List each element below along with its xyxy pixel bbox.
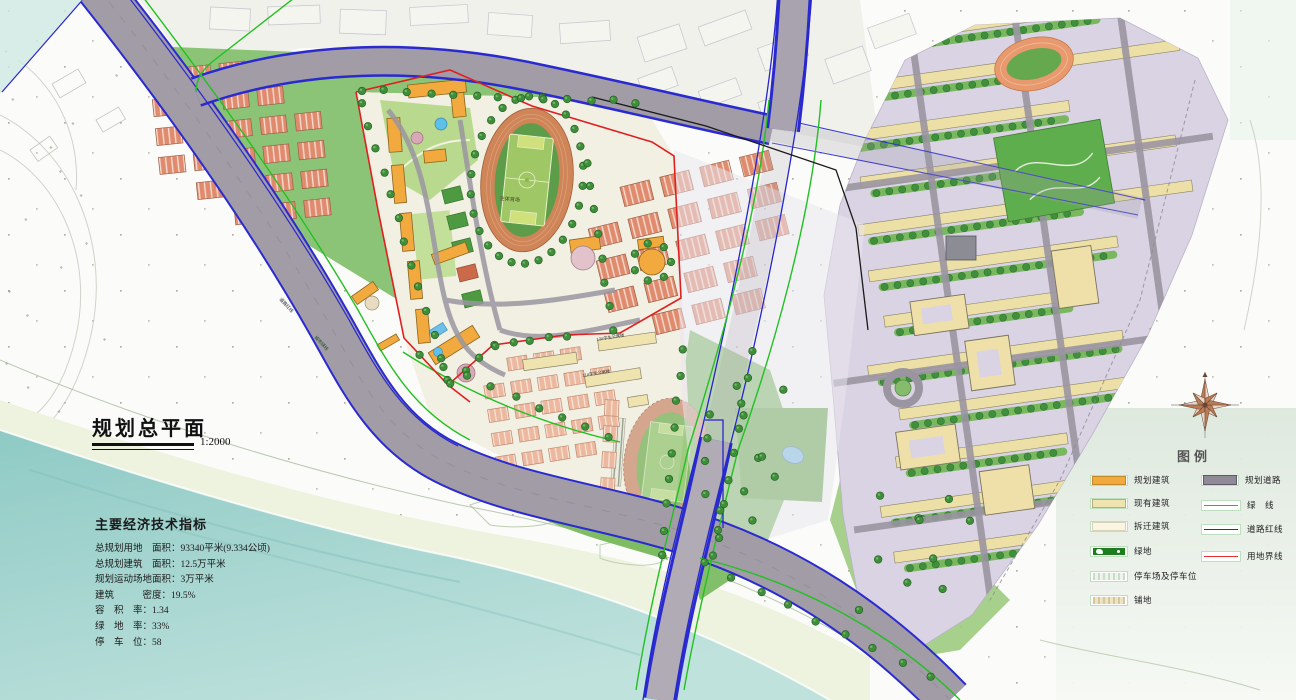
legend-item-land-boundary: 用地界线 (1201, 550, 1283, 562)
legend-item-parking: 停车场及停车位 (1090, 570, 1197, 582)
parking-swatch (1090, 571, 1128, 582)
legend-title: 图例 (1158, 446, 1230, 465)
legend: 图例 规划建筑 现有建筑 拆迁建筑 绿地 停车场及停车位 铺地 规划道路 绿 线… (1088, 446, 1296, 626)
legend-item-demolish-building: 拆迁建筑 (1090, 520, 1170, 532)
campus-pond (435, 118, 447, 130)
title-block: 规划总平面 1:2000 (92, 412, 207, 450)
indicator-line: 规划运动场地面积：3万平米 (95, 573, 270, 589)
demolish-building-swatch (1090, 521, 1128, 532)
paving-swatch (1090, 595, 1128, 606)
legend-item-paving: 铺地 (1090, 594, 1152, 606)
round-canteen (639, 249, 665, 275)
page-title: 规划总平面 (92, 412, 207, 441)
legend-item-road-redline: 道路红线 (1201, 523, 1283, 535)
gray-building (946, 236, 976, 260)
legend-item-green-space: 绿地 (1090, 545, 1152, 557)
indicator-line: 总规划建筑 面积：12.5万平米 (95, 558, 270, 574)
map-scale: 1:2000 (200, 436, 231, 448)
planned-road-swatch (1201, 475, 1239, 486)
planned-building-swatch (1090, 475, 1128, 486)
green-line-swatch (1201, 500, 1241, 511)
student-activity-hall (571, 246, 595, 270)
legend-item-green-line: 绿 线 (1201, 499, 1274, 511)
legend-item-planned-building: 规划建筑 (1090, 474, 1170, 486)
land-boundary-swatch (1201, 551, 1241, 562)
indicator-line: 绿 地 率：33% (95, 620, 270, 636)
legend-item-planned-road: 规划道路 (1201, 474, 1281, 486)
indicator-line: 建筑 密度：19.5% (95, 589, 270, 605)
green-space-swatch (1090, 546, 1128, 557)
legend-item-existing-building: 现有建筑 (1090, 497, 1170, 509)
existing-building-swatch (1090, 498, 1128, 509)
indicators-heading: 主要经济技术指标 (95, 514, 270, 533)
indicator-line: 总规划用地 面积：93340平米(9.334公顷) (95, 542, 270, 558)
planning-map-sheet: 规划总平面 1:2000 主要经济技术指标 总规划用地 面积：93340平米(9… (0, 0, 1296, 700)
road-redline-swatch (1201, 524, 1241, 535)
title-underline (92, 443, 194, 446)
indicator-line: 停 车 位：58 (95, 636, 270, 652)
indicator-line: 容 积 率：1.34 (95, 604, 270, 620)
economic-indicators: 主要经济技术指标 总规划用地 面积：93340平米(9.334公顷) 总规划建筑… (95, 514, 270, 651)
